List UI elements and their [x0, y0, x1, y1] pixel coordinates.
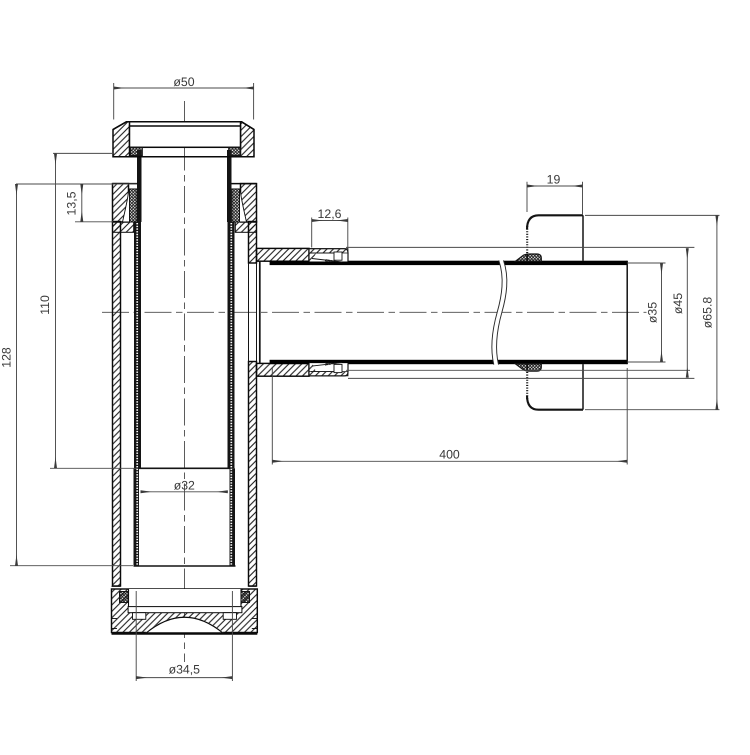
svg-text:ø35: ø35: [646, 302, 660, 323]
svg-text:12,6: 12,6: [318, 207, 342, 221]
svg-text:19: 19: [547, 173, 561, 187]
svg-text:13,5: 13,5: [65, 191, 79, 215]
svg-text:128: 128: [0, 347, 14, 368]
svg-text:110: 110: [38, 295, 52, 315]
svg-text:ø34,5: ø34,5: [169, 663, 201, 677]
svg-text:ø50: ø50: [173, 75, 194, 89]
svg-text:ø32: ø32: [174, 478, 195, 492]
svg-text:400: 400: [439, 448, 460, 462]
svg-text:ø45: ø45: [671, 293, 685, 314]
svg-text:ø65.8: ø65.8: [701, 297, 715, 329]
